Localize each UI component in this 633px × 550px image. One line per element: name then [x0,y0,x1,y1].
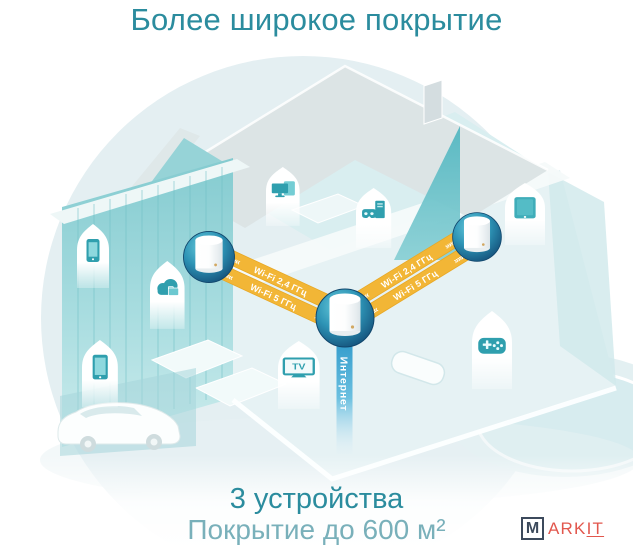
internet-label: Интернет [338,357,350,412]
deco-unit-left [183,231,234,282]
watermark-text: ARKIT [548,519,604,539]
deco-cylinder [195,235,222,272]
deco-cylinder [330,294,361,337]
smartphone-icon [87,239,100,262]
house-illustration: Интернет ««« Wi-Fi 2,4 ГГц »»» ««« Wi-Fi… [0,0,633,550]
summary-devices-count: 3 устройства [0,483,633,515]
smart-tv-icon: TV [284,358,314,377]
tv-label: TV [292,362,306,372]
page-title: Более широкое покрытие [0,3,633,37]
internet-line: Интернет [337,330,353,454]
chimney [424,80,442,124]
watermark-logo-m: M [521,517,544,540]
game-controller-icon [478,338,506,354]
deco-cylinder [464,216,490,252]
watermark: M ARKIT [521,517,604,540]
tablet-icon [514,197,535,218]
deco-unit-right [453,213,502,262]
tablet-icon [93,355,108,380]
deco-unit-center [316,289,374,347]
page: Интернет ««« Wi-Fi 2,4 ГГц »»» ««« Wi-Fi… [0,0,633,550]
